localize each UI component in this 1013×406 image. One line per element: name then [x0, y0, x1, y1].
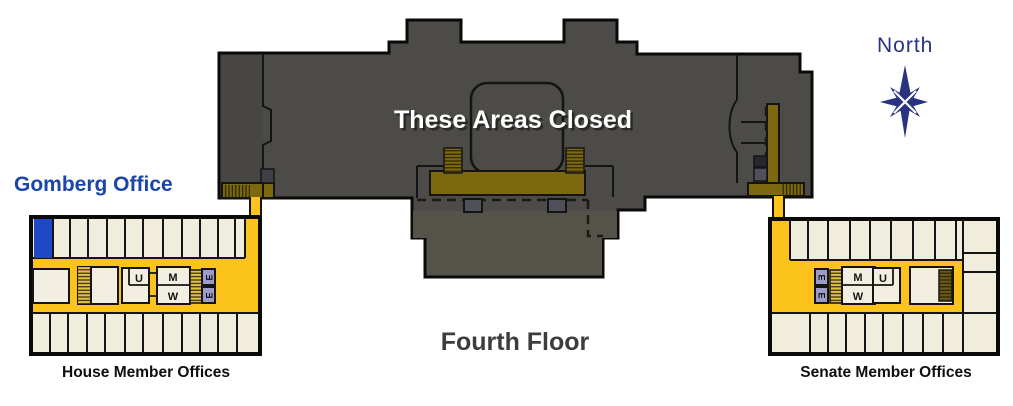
house-elevator-1-label: E — [205, 274, 215, 280]
stairs-east-tower-hatch — [566, 148, 584, 173]
closed-area-label: These Areas Closed — [394, 106, 632, 134]
floor-plan-page: These Areas Closed These Areas Closed U … — [0, 0, 1013, 406]
floorplan-svg: These Areas Closed These Areas Closed U … — [0, 0, 1013, 406]
senate-unisex-label: U — [879, 273, 887, 285]
east-block-square-dark — [754, 156, 767, 167]
senate-corner-corridor — [772, 221, 790, 260]
house-stair-hatch-rungs — [190, 270, 202, 303]
west-block-shade — [221, 54, 263, 197]
house-women-label: W — [168, 291, 179, 303]
senate-elevator-1-label: E — [817, 274, 827, 280]
vestibule-square-west — [464, 199, 482, 212]
east-corner-stairs-hatch — [782, 184, 803, 195]
vestibule-square-east — [548, 199, 566, 212]
stairs-west-tower-hatch — [444, 148, 462, 173]
south-annex — [413, 211, 617, 276]
west-block-square — [261, 169, 274, 183]
compass-star-icon — [880, 65, 928, 138]
house-unisex-label: U — [135, 273, 143, 285]
senate-dark-stairs-rungs — [939, 270, 952, 301]
senate-elevator-2-label: E — [817, 292, 827, 298]
house-elevator-2-label: E — [205, 292, 215, 298]
house-men-label: M — [168, 272, 177, 284]
house-stair-room-hatch — [78, 267, 91, 304]
house-anteroom — [33, 269, 69, 303]
house-wing-label: House Member Offices — [62, 364, 230, 381]
central-building: These Areas Closed These Areas Closed — [219, 20, 812, 277]
north-label: North — [877, 34, 933, 57]
gomberg-office-label: Gomberg Office — [14, 173, 173, 196]
senate-men-label: M — [853, 272, 862, 284]
house-wing: U M W E E House Member Offices Gomberg O… — [14, 173, 261, 381]
compass: North — [877, 34, 933, 138]
senate-stair-hatch-rungs — [830, 270, 842, 303]
east-block-square-gray — [754, 168, 767, 181]
west-corner-stairs-hatch — [224, 185, 250, 197]
senate-women-label: W — [853, 291, 864, 303]
balcony-corridor — [430, 171, 585, 195]
senate-wing-label: Senate Member Offices — [800, 364, 971, 381]
floor-title: Fourth Floor — [441, 328, 590, 356]
east-corridor-vertical — [767, 104, 779, 186]
gomberg-office-room — [34, 219, 53, 258]
senate-wing: E E M W U Senate Member Offices — [770, 196, 998, 381]
house-corner-corridor — [245, 219, 258, 258]
